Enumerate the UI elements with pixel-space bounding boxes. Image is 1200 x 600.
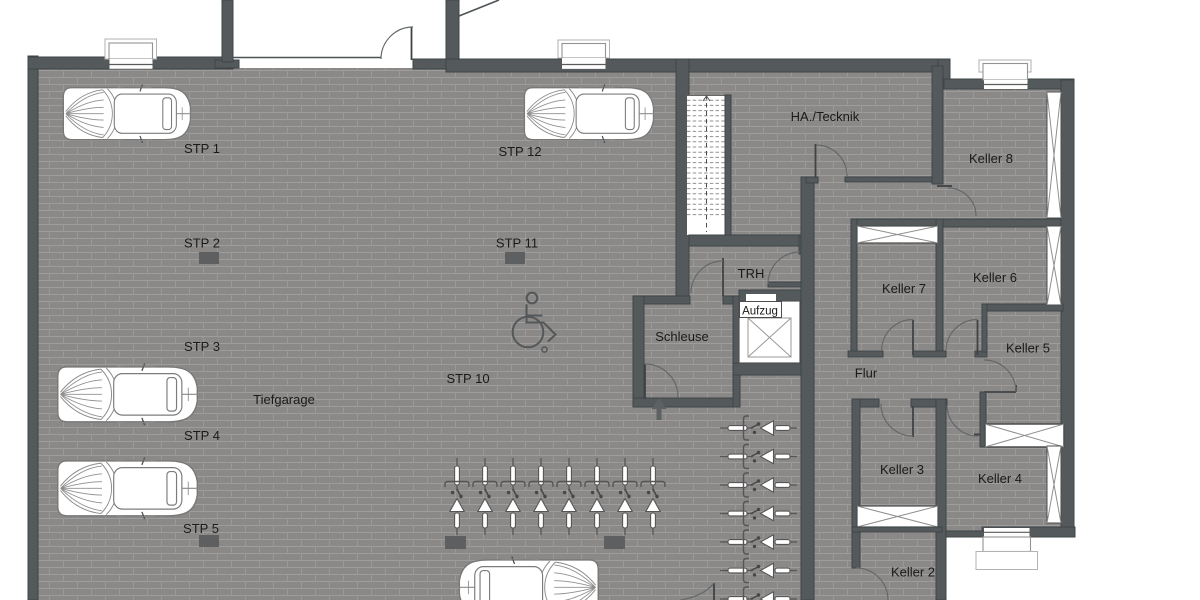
svg-text:Aufzug: Aufzug xyxy=(742,306,778,318)
svg-text:STP 2: STP 2 xyxy=(184,236,220,251)
svg-text:Keller 5: Keller 5 xyxy=(1006,341,1050,356)
svg-text:Keller 7: Keller 7 xyxy=(882,281,926,296)
svg-text:STP 4: STP 4 xyxy=(184,428,220,443)
svg-text:Keller 8: Keller 8 xyxy=(969,151,1013,166)
svg-text:Tiefgarage: Tiefgarage xyxy=(253,392,315,407)
svg-text:Schleuse: Schleuse xyxy=(655,329,708,344)
svg-text:TRH: TRH xyxy=(738,266,765,281)
svg-text:STP 1: STP 1 xyxy=(184,141,220,156)
svg-text:STP 12: STP 12 xyxy=(498,144,541,159)
svg-text:HA./Tecknik: HA./Tecknik xyxy=(791,109,860,124)
svg-text:Keller 4: Keller 4 xyxy=(978,471,1022,486)
svg-text:STP 5: STP 5 xyxy=(183,521,219,536)
svg-text:Keller 2: Keller 2 xyxy=(891,565,935,580)
svg-text:STP 11: STP 11 xyxy=(496,236,538,251)
svg-text:Keller 3: Keller 3 xyxy=(880,462,924,477)
svg-text:STP 3: STP 3 xyxy=(184,339,220,354)
svg-text:STP 10: STP 10 xyxy=(446,371,489,386)
svg-text:Keller 6: Keller 6 xyxy=(973,270,1017,285)
svg-text:Flur: Flur xyxy=(855,366,878,381)
